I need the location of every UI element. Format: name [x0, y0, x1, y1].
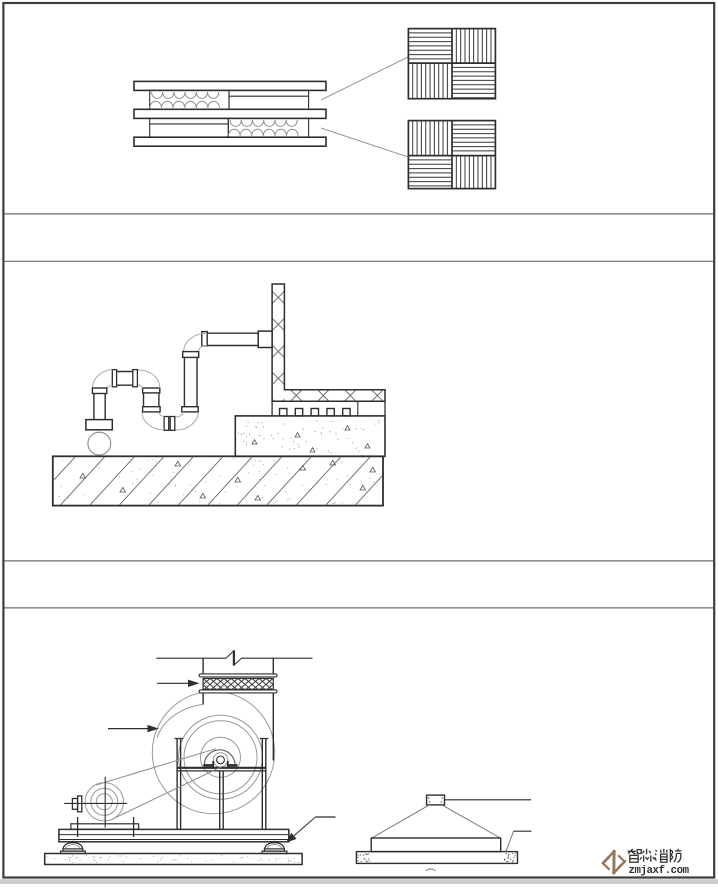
svg-text:zmjaxf.com: zmjaxf.com — [629, 865, 690, 877]
